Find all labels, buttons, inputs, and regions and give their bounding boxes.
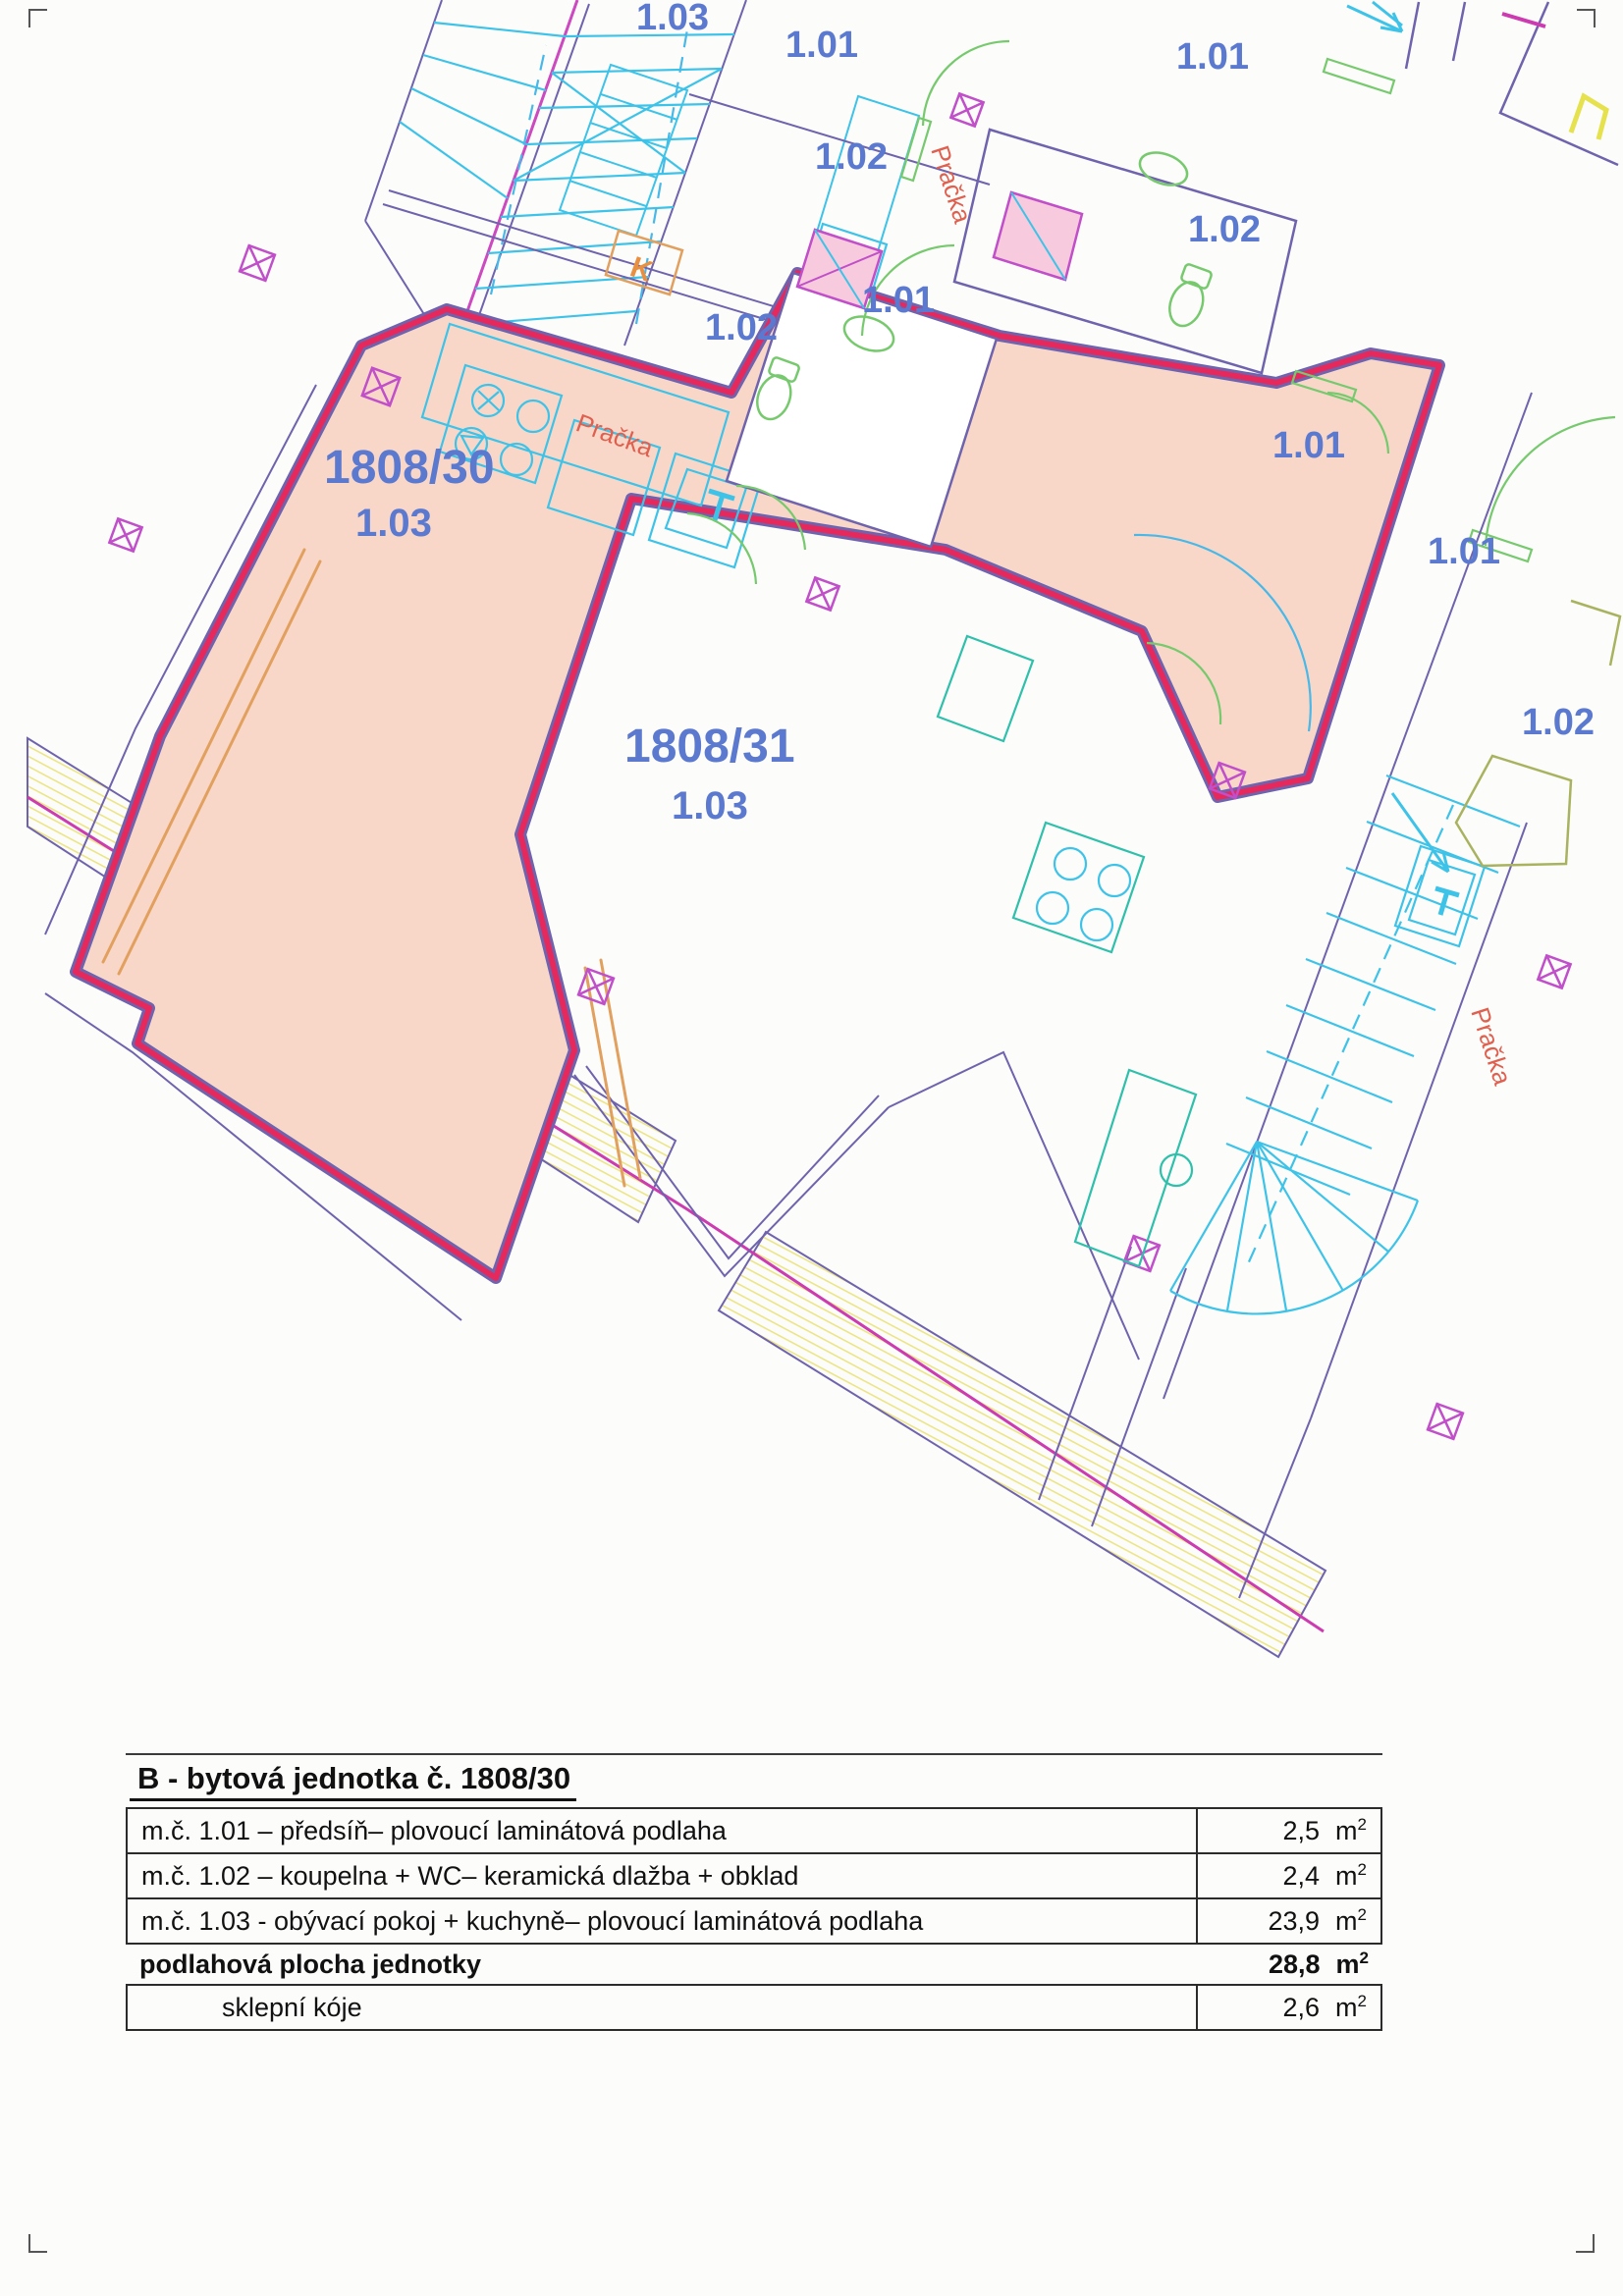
page-corner-mark bbox=[1577, 9, 1596, 27]
page-corner-mark bbox=[28, 2234, 47, 2253]
room-label: 1.01 bbox=[785, 25, 858, 66]
table-row: m.č. 1.02 – koupelna + WC– keramická dla… bbox=[126, 1852, 1382, 1899]
stair-newel-circle bbox=[1161, 1154, 1192, 1186]
row-value: 28,8 m2 bbox=[1200, 1943, 1382, 1986]
stove-31 bbox=[1013, 823, 1144, 952]
yellow-zigzag-mark bbox=[1571, 96, 1606, 139]
room-label: 1.01 bbox=[862, 280, 935, 321]
area-unit: m2 bbox=[1335, 1860, 1367, 1892]
page-corner-mark bbox=[28, 9, 47, 27]
row-label: m.č. 1.02 – koupelna + WC– keramická dla… bbox=[126, 1852, 1198, 1899]
closet-olive bbox=[1456, 756, 1571, 866]
page-corner-mark bbox=[1576, 2234, 1595, 2253]
room-label: 1.03 bbox=[636, 0, 709, 38]
table-row: m.č. 1.03 - obývací pokoj + kuchyně– plo… bbox=[126, 1897, 1382, 1945]
stairwell-left bbox=[365, 0, 746, 365]
winder-steps-fan bbox=[1075, 1070, 1418, 1313]
table-top-rule bbox=[126, 1753, 1382, 1755]
unit-1808-30 bbox=[76, 93, 1571, 1439]
row-value: 2,4 m2 bbox=[1196, 1852, 1382, 1899]
row-label: m.č. 1.03 - obývací pokoj + kuchyně– plo… bbox=[126, 1897, 1198, 1945]
area-unit: m2 bbox=[1335, 1905, 1367, 1937]
washbasin-top-unit bbox=[1135, 146, 1191, 190]
room-label: 1.02 bbox=[1522, 702, 1595, 743]
room-label: 1.01 bbox=[1272, 425, 1345, 466]
unit-number-label: 1808/30 bbox=[324, 442, 495, 494]
washer-label: Pračka bbox=[925, 142, 978, 228]
scanned-floor-plan-page: 1.03 1.01 1.02 1.01 1.02 1.01 1.02 1.01 … bbox=[0, 0, 1623, 2296]
row-label: m.č. 1.01 – předsíň– plovoucí laminátová… bbox=[126, 1807, 1198, 1854]
room-label: 1.02 bbox=[705, 307, 778, 348]
area-number: 2,6 bbox=[1282, 1993, 1320, 2023]
room-label: 1.03 bbox=[672, 784, 748, 828]
area-number: 28,8 bbox=[1269, 1949, 1321, 1980]
unit-number-label: 1808/31 bbox=[624, 721, 795, 773]
kitchen-counter-31 bbox=[938, 636, 1144, 952]
magenta-stub bbox=[1502, 14, 1545, 27]
room-label: 1.01 bbox=[1176, 36, 1249, 78]
area-unit: m2 bbox=[1336, 1949, 1369, 1980]
row-value: 2,5 m2 bbox=[1196, 1807, 1382, 1854]
table-row: sklepní kóje 2,6 m2 bbox=[126, 1984, 1382, 2031]
washer-label: Pračka bbox=[1465, 1004, 1518, 1090]
row-value: 2,6 m2 bbox=[1196, 1984, 1382, 2031]
wc-top-unit bbox=[1163, 263, 1214, 331]
row-label: sklepní kóje bbox=[126, 1984, 1198, 2031]
cyan-arrow-icon bbox=[1347, 2, 1402, 31]
table-row-total: podlahová plocha jednotky 28,8 m2 bbox=[126, 1943, 1382, 1986]
area-unit: m2 bbox=[1335, 1992, 1367, 2023]
table-row: m.č. 1.01 – předsíň– plovoucí laminátová… bbox=[126, 1807, 1382, 1854]
room-label: 1.02 bbox=[1188, 209, 1261, 250]
area-number: 2,5 bbox=[1282, 1816, 1320, 1846]
room-label: 1.01 bbox=[1428, 531, 1500, 572]
row-value: 23,9 m2 bbox=[1196, 1897, 1382, 1945]
washer-right-stairs bbox=[1392, 793, 1485, 946]
door-olive-31 bbox=[1571, 601, 1620, 666]
table-title: B - bytová jednotka č. 1808/30 bbox=[130, 1761, 576, 1801]
chimney-label: K bbox=[626, 251, 658, 290]
area-unit: m2 bbox=[1335, 1815, 1367, 1846]
row-label: podlahová plocha jednotky bbox=[126, 1943, 1200, 1986]
area-number: 23,9 bbox=[1268, 1906, 1320, 1937]
area-number: 2,4 bbox=[1282, 1861, 1320, 1892]
room-label: 1.03 bbox=[355, 502, 432, 545]
area-table: B - bytová jednotka č. 1808/30 m.č. 1.01… bbox=[126, 1753, 1382, 2031]
floor-plan-drawing: 1.03 1.01 1.02 1.01 1.02 1.01 1.02 1.01 … bbox=[0, 0, 1623, 1742]
room-label: 1.02 bbox=[815, 136, 888, 178]
